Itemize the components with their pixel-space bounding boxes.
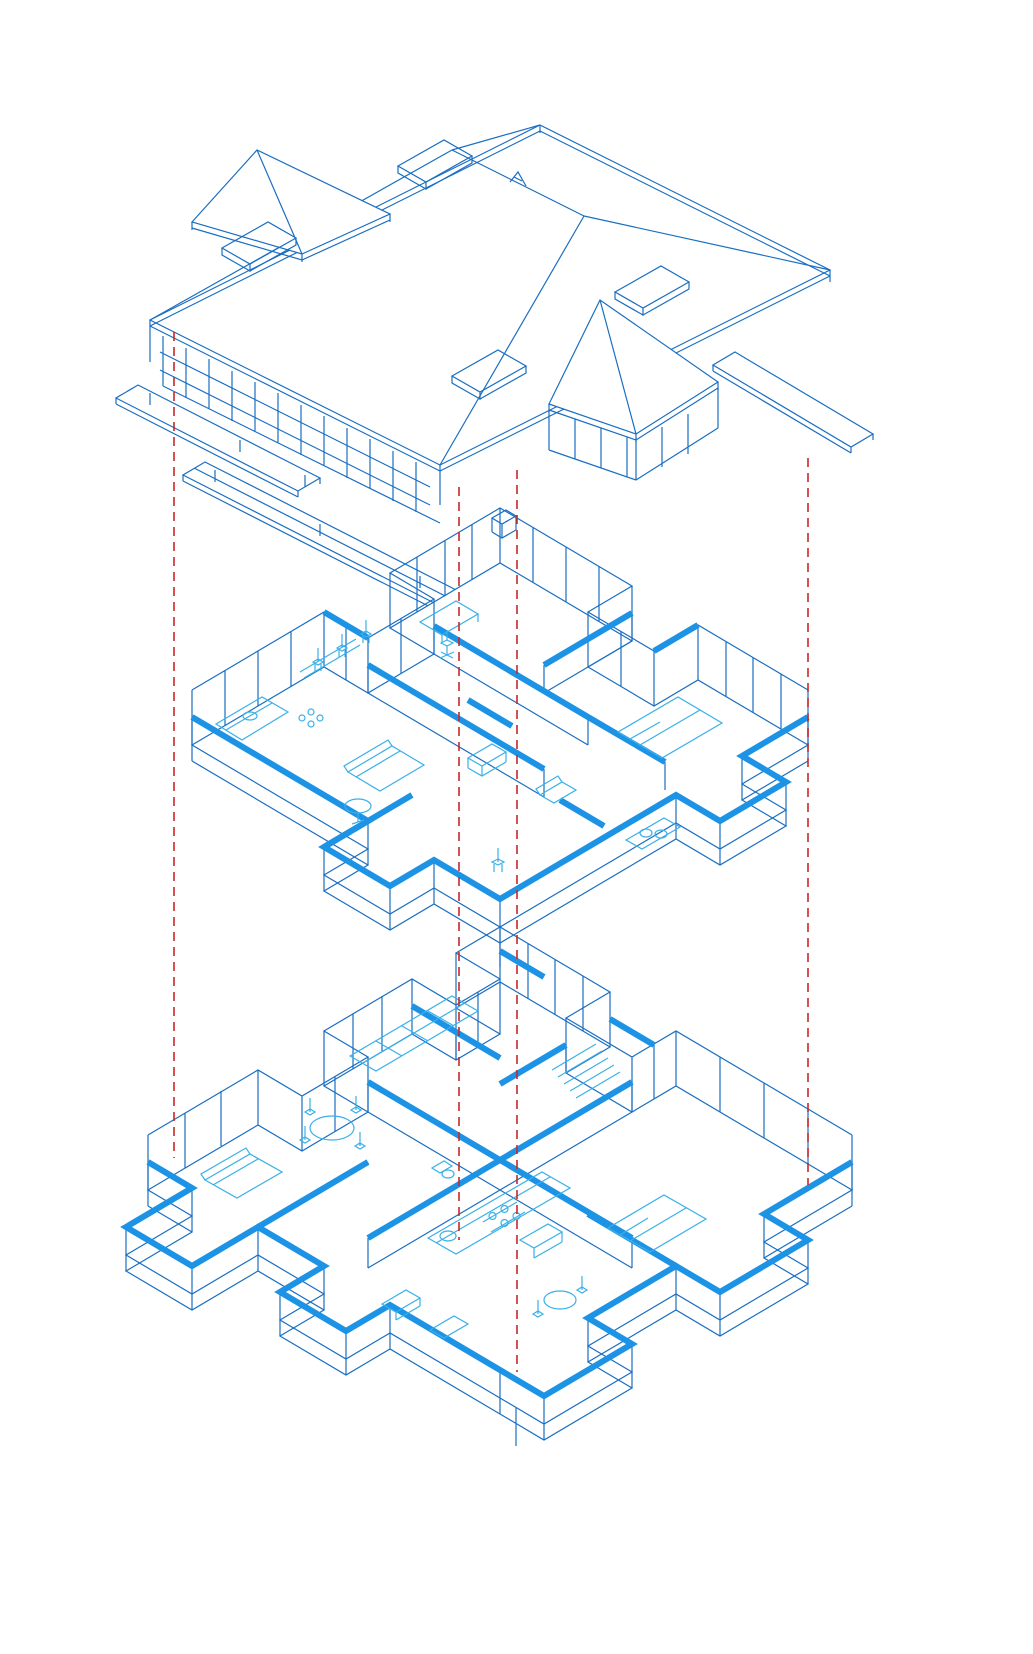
exploded-axonometric-drawing [0,0,1033,1654]
bar-stools [313,620,371,671]
roof-overhang-slab [713,352,873,453]
ground-floor-level [126,927,852,1446]
blueprint-canvas [0,0,1033,1654]
upper-chimney-box [492,510,516,538]
roof-level [116,125,873,615]
upper-floor-level [192,508,808,967]
